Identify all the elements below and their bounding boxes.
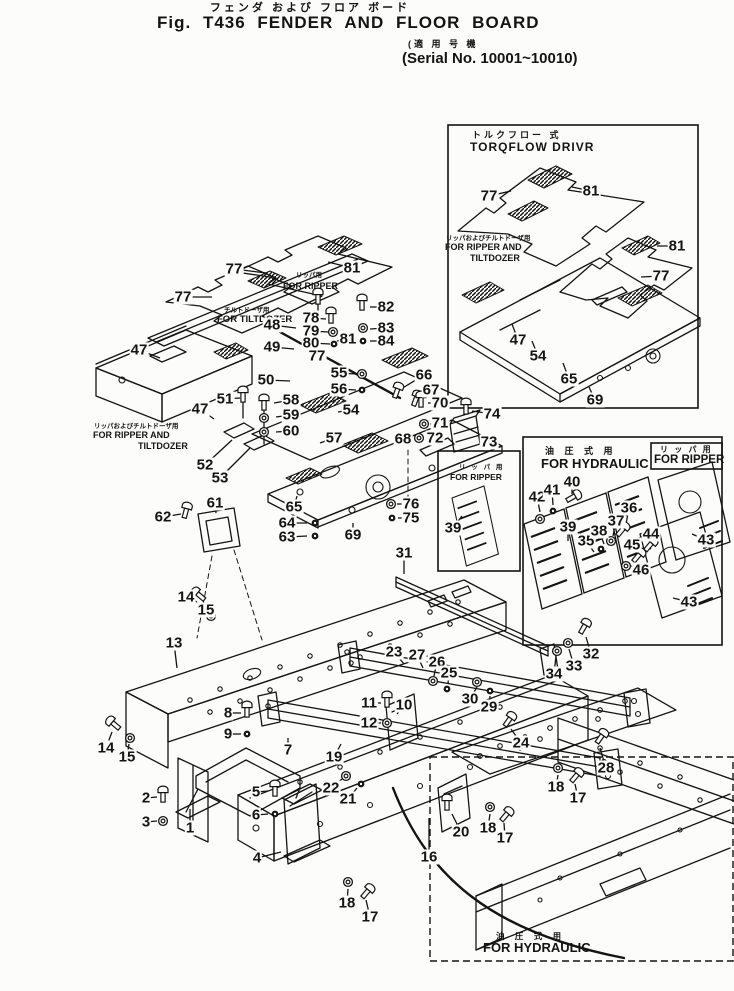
part-callout-31: 31: [395, 546, 414, 561]
nut-icon: [312, 533, 319, 540]
hydraulic-header-jp: 油 圧 式 用: [545, 447, 617, 456]
part-callout-12: 12: [360, 716, 379, 731]
page-title: Fig. T436 FENDER AND FLOOR BOARD: [157, 14, 540, 31]
washer-icon: [260, 428, 269, 437]
bolt-icon: [104, 714, 123, 732]
bolt-icon: [593, 727, 610, 746]
inset-note-en1: FOR RIPPER AND: [445, 243, 522, 252]
nut-icon: [360, 338, 367, 345]
part-callout-10: 10: [395, 698, 414, 713]
part-callout-25: 25: [440, 666, 459, 681]
part-callout-54: 54: [529, 349, 548, 364]
part-callout-34: 34: [545, 667, 564, 682]
bolt-icon: [568, 766, 586, 785]
part-callout-48: 48: [263, 318, 282, 333]
washer-icon: [473, 678, 482, 687]
bolt-icon: [461, 398, 471, 414]
part-callout-61: 61: [206, 496, 225, 511]
part-callout-69: 69: [586, 393, 605, 408]
bolt-icon: [238, 386, 248, 402]
part-callout-51: 51: [216, 392, 235, 407]
washer-icon: [159, 817, 168, 826]
part-callout-46: 46: [632, 563, 651, 578]
washer-icon: [622, 562, 631, 571]
part-callout-1: 1: [185, 821, 195, 836]
panel-43-top: [658, 462, 730, 560]
torqflow-inset-box: [448, 125, 698, 408]
fender-47: [96, 326, 252, 422]
serial-caption-jp: (適 用 号 機: [408, 40, 479, 49]
part-callout-22: 22: [322, 781, 341, 796]
washer-icon: [553, 647, 562, 656]
washer-icon: [358, 370, 367, 379]
bolt-icon: [179, 501, 193, 519]
part-callout-18: 18: [479, 821, 498, 836]
part-callout-32: 32: [582, 647, 601, 662]
part-callout-43: 43: [697, 533, 716, 548]
part-callout-9: 9: [223, 727, 233, 742]
part-callout-77: 77: [480, 189, 499, 204]
ripper-header-en: FOR RIPPER: [654, 455, 724, 467]
washer-icon: [429, 677, 438, 686]
part-callout-74: 74: [483, 407, 502, 422]
nut-icon: [598, 546, 605, 553]
part-callout-81: 81: [668, 239, 687, 254]
part-callout-47: 47: [191, 402, 210, 417]
washer-icon: [420, 420, 429, 429]
nut-icon: [487, 688, 494, 695]
part-callout-17: 17: [496, 831, 515, 846]
part-callout-43: 43: [680, 595, 699, 610]
part-callout-57: 57: [325, 431, 344, 446]
bolt-icon: [259, 394, 269, 410]
part-callout-60: 60: [282, 424, 301, 439]
bracket-7: [176, 748, 322, 818]
part-callout-65: 65: [285, 500, 304, 515]
serial-number: (Serial No. 10001~10010): [402, 51, 578, 66]
part-callout-17: 17: [361, 910, 380, 925]
part-callout-77: 77: [652, 269, 671, 284]
ripper-note-en: FOR RIPPER: [283, 282, 338, 291]
washer-icon: [387, 500, 396, 509]
part-callout-77: 77: [174, 290, 193, 305]
bolt-icon: [390, 381, 405, 399]
part-callout-66: 66: [415, 368, 434, 383]
washer-icon: [329, 328, 338, 337]
part-callout-59: 59: [282, 408, 301, 423]
part-callout-55: 55: [330, 366, 349, 381]
part-callout-39: 39: [559, 520, 578, 535]
part-callout-38: 38: [590, 524, 609, 539]
part-callout-2: 2: [141, 791, 151, 806]
part-callout-17: 17: [569, 791, 588, 806]
part-callout-70: 70: [431, 396, 450, 411]
exploded-diagram: [0, 0, 734, 991]
nut-icon: [550, 508, 557, 515]
part-callout-18: 18: [547, 780, 566, 795]
bolt-icon: [576, 617, 593, 636]
inset-note-en2: TILTDOZER: [470, 254, 520, 263]
part-callout-5: 5: [251, 785, 261, 800]
part-callout-41: 41: [543, 483, 562, 498]
bolt-icon: [357, 294, 367, 310]
washer-icon: [383, 719, 392, 728]
right-fender-slab: [558, 718, 734, 824]
washer-icon: [536, 515, 545, 524]
part-callout-63: 63: [278, 530, 297, 545]
part-callout-47: 47: [130, 343, 149, 358]
part-callout-44: 44: [642, 527, 661, 542]
left-panel-header-en: FOR RIPPER: [450, 473, 502, 482]
left-note-en2: TILTDOZER: [138, 442, 188, 451]
part-callout-77: 77: [308, 349, 327, 364]
part-callout-68: 68: [394, 432, 413, 447]
bolt-icon: [158, 786, 168, 802]
nut-icon: [389, 515, 396, 522]
part-callout-14: 14: [177, 590, 196, 605]
part-callout-65: 65: [560, 372, 579, 387]
bolt-icon: [442, 794, 452, 810]
part-callout-23: 23: [385, 645, 404, 660]
washer-icon: [344, 878, 353, 887]
hydraulic-header-en: FOR HYDRAULIC: [541, 457, 649, 470]
part-callout-21: 21: [339, 792, 358, 807]
part-callout-19: 19: [325, 750, 344, 765]
parts-catalog-page: フェンダ および フロア ボード Fig. T436 FENDER AND FL…: [0, 0, 734, 991]
part-callout-56: 56: [330, 382, 349, 397]
bolt-icon: [270, 780, 280, 796]
part-callout-27: 27: [408, 648, 427, 663]
part-callout-82: 82: [377, 300, 396, 315]
washer-icon: [554, 764, 563, 773]
part-callout-62: 62: [154, 510, 173, 525]
part-callout-33: 33: [565, 659, 584, 674]
part-callout-39: 39: [444, 521, 463, 536]
nut-icon: [312, 520, 319, 527]
part-callout-18: 18: [338, 896, 357, 911]
part-callout-8: 8: [223, 706, 233, 721]
part-callout-73: 73: [480, 435, 499, 450]
torqflow-header-en: TORQFLOW DRIVR: [470, 141, 594, 153]
washer-icon: [486, 803, 495, 812]
part-callout-84: 84: [377, 334, 396, 349]
nut-icon: [272, 811, 279, 818]
nut-icon: [358, 781, 365, 788]
torqflow-header-jp: トルクフロー 式: [472, 131, 562, 140]
washer-icon: [260, 414, 269, 423]
nut-icon: [331, 341, 338, 348]
part-callout-3: 3: [141, 815, 151, 830]
nut-icon: [359, 387, 366, 394]
washer-icon: [564, 639, 573, 648]
part-callout-50: 50: [257, 373, 276, 388]
part-callout-13: 13: [165, 636, 184, 651]
washer-icon: [126, 734, 135, 743]
ripper-header-jp: リ ッ パ 用: [660, 446, 713, 454]
bottom-channel: [476, 794, 730, 950]
part-callout-28: 28: [597, 761, 616, 776]
part-callout-75: 75: [402, 511, 421, 526]
left-note-en1: FOR RIPPER AND: [93, 431, 170, 440]
part-callout-45: 45: [623, 538, 642, 553]
part-callout-15: 15: [197, 603, 216, 618]
left-panel-header-jp: リ ッ パ 用: [459, 465, 504, 472]
bottom-box-en: FOR HYDRAULIC: [483, 941, 591, 954]
part-callout-81: 81: [343, 261, 362, 276]
washer-icon: [359, 324, 368, 333]
part-callout-7: 7: [283, 743, 293, 758]
part-callout-49: 49: [263, 340, 282, 355]
part-callout-15: 15: [118, 750, 137, 765]
part-callout-4: 4: [252, 851, 262, 866]
ripper-note-jp: リッパ用: [296, 273, 322, 280]
part-callout-47: 47: [509, 333, 528, 348]
part-callout-53: 53: [211, 471, 230, 486]
part-callout-24: 24: [512, 736, 531, 751]
part-callout-72: 72: [426, 431, 445, 446]
bracket-61: [197, 508, 262, 640]
part-callout-6: 6: [251, 808, 261, 823]
part-callout-77: 77: [225, 262, 244, 277]
part-callout-81: 81: [582, 184, 601, 199]
part-callout-14: 14: [97, 741, 116, 756]
part-callout-11: 11: [360, 696, 378, 711]
bolt-icon: [498, 805, 516, 824]
bolt-icon: [326, 307, 336, 323]
part-callout-29: 29: [480, 700, 499, 715]
part-callout-20: 20: [452, 825, 471, 840]
part-callout-36: 36: [620, 501, 639, 516]
part-callout-71: 71: [431, 416, 450, 431]
part-callout-54: 54: [342, 403, 361, 418]
bracket-73: [450, 410, 480, 452]
bolt-icon: [359, 882, 377, 901]
part-callout-58: 58: [282, 393, 301, 408]
part-callout-81: 81: [339, 332, 358, 347]
nut-icon: [244, 731, 251, 738]
nut-icon: [444, 686, 451, 693]
washer-icon: [342, 772, 351, 781]
part-callout-40: 40: [563, 475, 582, 490]
washer-icon: [415, 434, 424, 443]
part-callout-30: 30: [461, 692, 480, 707]
part-callout-69: 69: [344, 528, 363, 543]
part-callout-16: 16: [420, 850, 439, 865]
